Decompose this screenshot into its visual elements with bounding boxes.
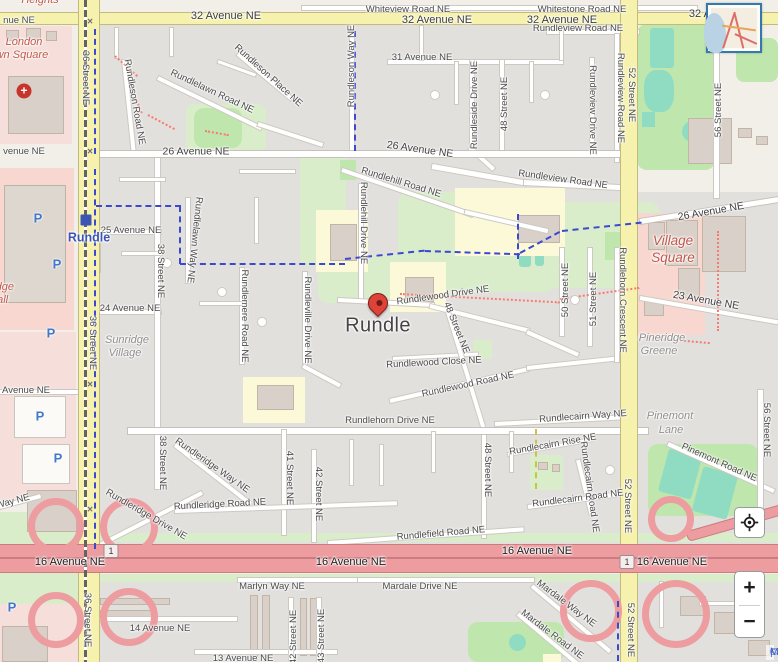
building-footprint [250,595,258,657]
place-label: London [6,37,43,49]
area-label: Pinemont [647,411,693,423]
parking-icon: P [53,257,62,272]
road-label: Rundleside Drive NE [470,61,480,149]
building-footprint [257,385,294,410]
building-footprint [300,598,307,656]
building-footprint [552,464,560,472]
trail-path [96,205,181,207]
road-label: 42 Street NE [313,467,323,521]
road-label: 51 Street NE [589,272,599,326]
locate-button[interactable] [734,507,765,538]
culdesac-circle [430,90,440,100]
landuse-area [642,112,655,127]
road-label: 36 Street NE [80,51,90,105]
highway-ramp-loop [648,496,694,542]
zoom-control: + − [734,571,765,638]
building-footprint [8,76,64,134]
openstreetmap-link[interactable]: © OpenStreetMap [770,645,778,660]
road-label: Rundlehill Drive NE [358,182,368,264]
road-label: 26 Avenue NE [163,146,230,157]
highway-shield: 1 [104,544,119,558]
area-label: Sunridge [105,335,149,347]
area-label: Lane [659,425,683,437]
road-label: Rundlehorn Crescent NE [617,247,627,353]
road-label: Marlyn Way NE [239,582,305,592]
zoom-in-button[interactable]: + [735,572,764,605]
road-label: nue NE [3,16,35,26]
highway-ramp-loop [642,580,710,648]
landuse-area [644,70,674,112]
parking-icon: P [34,211,43,226]
highway-ramp-loop [100,588,158,646]
road-segment [432,432,435,472]
road-label: 48 Street NE [482,443,492,497]
railway-crossing-icon: × [87,505,93,516]
road-label: 52 Street NE [622,479,632,533]
trail-path [94,29,96,154]
attribution-bar: MapPress | © OpenStreetMap [766,645,774,660]
culdesac-circle [570,295,580,305]
railway-crossing-icon: × [87,380,93,391]
road-segment [380,445,383,485]
landuse-area [543,654,561,662]
marker-place-label: Rundle [345,316,411,337]
parking-icon: P [36,409,45,424]
road-segment [240,170,295,173]
station-label: Rundle [68,231,110,244]
building-footprint [702,216,746,272]
building-footprint [330,224,357,261]
road-segment [170,28,173,56]
road-label: 56 Street NE [714,83,724,137]
place-label: Village [653,234,693,248]
road-segment [120,178,165,181]
road-segment [115,28,118,58]
road-label: Rundleville Drive NE [302,276,312,363]
road-label: Avenue NE [2,386,50,396]
culdesac-circle [540,90,550,100]
road-label: 31 Avenue NE [392,53,453,63]
road-label: 14 Avenue NE [130,624,191,634]
road-label: Rundlemere Road NE [239,270,249,363]
road-label: 36 Street NE [87,316,97,370]
parking-icon: P [47,326,56,341]
road-label: Rundleview Drive NE [587,65,597,155]
locate-icon [740,513,759,532]
culdesac-circle [257,317,267,327]
road-label: 52 Street NE [625,603,635,657]
road-label: 42 Street NE [289,610,299,662]
building-footprint [688,118,732,164]
road-label: Rundleson Way NE [347,25,357,108]
road-segment [350,440,353,485]
road-label: 36 Street NE [82,593,92,647]
road-label: venue NE [3,147,45,157]
road-label: 24 Avenue NE [100,304,161,314]
road-label: Rundleview Road NE [533,24,623,34]
road-segment [128,428,648,434]
road-label: 43 Street NE [317,609,327,662]
place-label: Heights [21,0,58,7]
road-label: Rundlehorn Drive NE [345,416,435,426]
area-label: Pineridge [639,333,685,345]
road-label: 13 Avenue NE [213,654,274,662]
trail-path [535,429,537,489]
trail-path [717,231,719,331]
area-label: Village [109,348,142,360]
highway-label: 16 Avenue NE [316,557,386,569]
highway-label: 16 Avenue NE [502,546,572,558]
highway-ramp-loop [28,592,84,648]
railway-crossing-icon: × [87,17,93,28]
trail-path [179,206,181,264]
minimap-preview[interactable] [706,3,762,53]
road-label: 32 Avenue NE [191,11,261,23]
road-label: 48 Street NE [500,77,510,131]
road-segment [255,198,258,243]
place-label: Square [651,251,695,265]
building-footprint [738,128,752,138]
road-label: 50 Street NE [561,263,571,317]
landuse-area [509,634,526,651]
trail-path [517,214,519,259]
culdesac-circle [605,465,615,475]
place-label: Sunridge [0,282,14,294]
trail-path [617,601,619,661]
road-segment [530,62,533,102]
trail-path [180,263,345,265]
highway-shield: 1 [620,555,635,569]
landuse-area [650,28,674,68]
building-footprint [262,595,270,657]
parking-icon: P [54,451,63,466]
highway-label: 16 Avenue NE [35,557,105,569]
railway-crossing-icon: × [87,147,93,158]
road-segment [455,62,458,104]
parking-icon: P [8,600,17,615]
map-canvas[interactable]: nue NE32 Avenue NEWhiteview Road NE32 Av… [0,0,778,662]
road-label: 38 Street NE [157,436,167,490]
hospital-icon: + [17,84,32,99]
building-footprint [538,462,548,470]
place-label: Mall [0,295,8,307]
highway-ramp-loop [28,498,84,554]
building-footprint [22,444,70,484]
station-icon [81,215,92,226]
area-label: Greene [641,346,678,358]
road-label: 38 Street NE [155,244,165,298]
road-label: 32 Avenue NE [402,15,472,27]
road-label: 56 Street NE [761,403,771,457]
zoom-out-button[interactable]: − [735,606,764,639]
culdesac-circle [217,287,227,297]
place-label: Town Square [0,50,48,62]
road-segment [200,302,242,305]
road-label: Rundleview Road NE [615,53,625,143]
road-label: 52 Street NE [626,68,636,122]
highway-label: 16 Avenue NE [637,557,707,569]
road-label: Mardale Drive NE [383,582,458,592]
building-footprint [756,136,768,145]
road-label: 41 Street NE [284,451,294,505]
building-footprint [46,31,57,41]
